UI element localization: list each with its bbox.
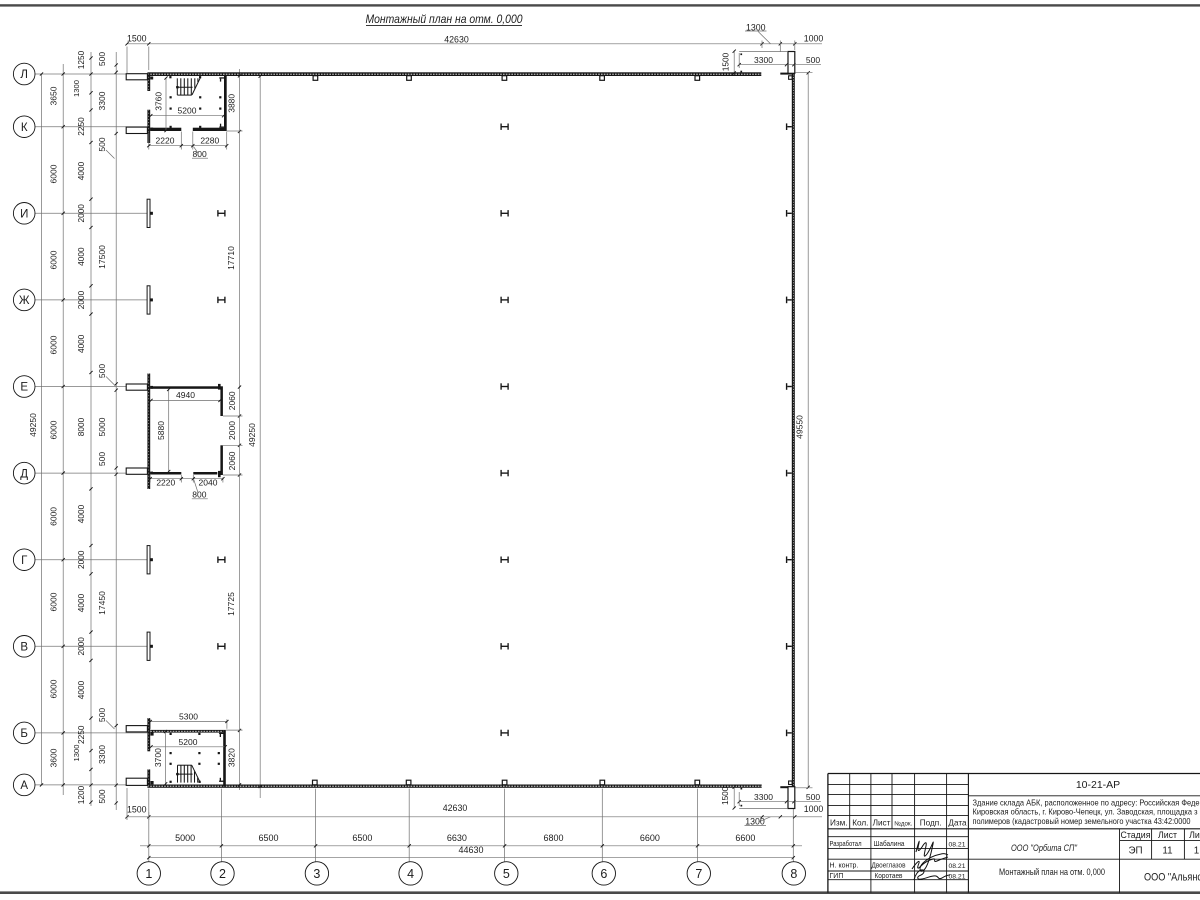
svg-text:6000: 6000 (49, 164, 59, 183)
svg-text:ООО "Альянс: ООО "Альянс (1144, 872, 1200, 884)
svg-text:Г: Г (21, 555, 28, 567)
svg-text:2: 2 (219, 867, 226, 881)
svg-text:Ли: Ли (1189, 830, 1200, 840)
svg-text:08.21: 08.21 (948, 841, 965, 848)
svg-text:3: 3 (313, 867, 320, 881)
svg-text:Д: Д (20, 468, 28, 480)
svg-text:1: 1 (145, 867, 152, 881)
svg-text:800: 800 (192, 490, 206, 500)
svg-text:2000: 2000 (76, 550, 86, 569)
svg-text:6000: 6000 (49, 420, 59, 439)
svg-text:5200: 5200 (178, 105, 197, 115)
svg-text:1000: 1000 (804, 804, 824, 814)
svg-text:Дата: Дата (948, 819, 967, 828)
svg-text:2000: 2000 (76, 637, 86, 656)
svg-text:3760: 3760 (154, 92, 164, 111)
svg-text:ЭП: ЭП (1128, 846, 1142, 857)
svg-text:3820: 3820 (226, 748, 236, 767)
svg-text:4000: 4000 (76, 593, 86, 612)
svg-text:2220: 2220 (156, 477, 175, 487)
svg-text:42630: 42630 (444, 35, 469, 45)
svg-text:2280: 2280 (200, 135, 219, 145)
svg-text:11: 11 (1162, 846, 1172, 857)
svg-text:6000: 6000 (49, 592, 59, 611)
svg-text:5: 5 (503, 867, 510, 881)
svg-text:3700: 3700 (153, 748, 163, 767)
svg-text:800: 800 (193, 149, 207, 159)
svg-text:№док.: №док. (894, 820, 912, 827)
svg-text:3300: 3300 (97, 745, 107, 764)
svg-text:полимеров (кадастровый номер з: полимеров (кадастровый номер земельного … (973, 816, 1191, 826)
svg-text:Е: Е (20, 382, 28, 394)
svg-text:3880: 3880 (227, 94, 237, 113)
svg-text:К: К (21, 122, 28, 134)
svg-text:Н. контр.: Н. контр. (830, 863, 859, 870)
svg-text:5200: 5200 (179, 737, 198, 747)
svg-text:6600: 6600 (640, 833, 660, 843)
svg-text:ООО "Орбита СП": ООО "Орбита СП" (1011, 843, 1078, 853)
svg-text:4000: 4000 (76, 247, 86, 266)
svg-text:44630: 44630 (458, 845, 483, 855)
svg-text:Разработал: Разработал (830, 840, 862, 848)
svg-text:500: 500 (806, 792, 820, 802)
svg-text:6000: 6000 (49, 335, 59, 354)
svg-text:3300: 3300 (97, 91, 107, 110)
svg-text:49250: 49250 (28, 413, 38, 437)
svg-text:2000: 2000 (76, 204, 86, 223)
svg-text:500: 500 (97, 708, 107, 722)
svg-text:6000: 6000 (49, 679, 59, 698)
svg-text:Б: Б (20, 728, 28, 740)
svg-text:7: 7 (695, 867, 702, 881)
svg-text:500: 500 (97, 364, 107, 378)
svg-text:Лист: Лист (873, 819, 891, 828)
svg-text:1: 1 (1194, 846, 1199, 857)
svg-text:2220: 2220 (156, 135, 175, 145)
svg-text:6600: 6600 (735, 833, 755, 843)
svg-text:5000: 5000 (97, 417, 107, 436)
svg-text:2000: 2000 (227, 421, 237, 440)
svg-text:2250: 2250 (76, 117, 86, 136)
svg-text:1500: 1500 (127, 33, 147, 43)
svg-text:4000: 4000 (76, 161, 86, 180)
svg-text:6630: 6630 (447, 833, 467, 843)
svg-text:3650: 3650 (49, 86, 59, 105)
svg-text:49250: 49250 (247, 423, 257, 447)
svg-text:17500: 17500 (97, 245, 107, 269)
svg-text:3300: 3300 (754, 55, 773, 65)
svg-text:В: В (20, 642, 28, 654)
svg-text:500: 500 (97, 789, 107, 803)
svg-text:Л: Л (20, 69, 28, 81)
svg-text:5300: 5300 (179, 712, 198, 722)
svg-text:Двоеглазов: Двоеглазов (872, 863, 906, 870)
svg-text:2000: 2000 (76, 290, 86, 309)
svg-text:500: 500 (97, 137, 107, 151)
svg-text:6: 6 (600, 867, 607, 881)
svg-text:ГИП: ГИП (830, 873, 844, 880)
svg-text:Монтажный план на отм. 0,000: Монтажный план на отм. 0,000 (366, 12, 523, 26)
svg-text:42630: 42630 (443, 803, 468, 813)
svg-text:1250: 1250 (76, 50, 86, 69)
svg-text:1500: 1500 (720, 52, 730, 71)
svg-text:Коротаев: Коротаев (875, 873, 903, 880)
svg-text:А: А (20, 780, 28, 792)
svg-text:1300: 1300 (72, 745, 81, 762)
svg-text:2250: 2250 (76, 725, 86, 744)
svg-text:5880: 5880 (156, 421, 166, 440)
svg-text:4000: 4000 (76, 334, 86, 353)
svg-text:1500: 1500 (127, 805, 147, 815)
svg-text:Кировская область, г. Кирово-Ч: Кировская область, г. Кирово-Чепецк, ул.… (973, 806, 1198, 816)
svg-text:4: 4 (407, 867, 414, 881)
svg-text:10-21-АР: 10-21-АР (1076, 779, 1120, 791)
svg-text:8000: 8000 (76, 417, 86, 436)
svg-text:Подп.: Подп. (920, 819, 942, 828)
svg-text:17450: 17450 (97, 591, 107, 615)
svg-text:2060: 2060 (227, 391, 237, 410)
svg-text:500: 500 (806, 55, 820, 65)
svg-text:6500: 6500 (352, 833, 372, 843)
svg-text:3600: 3600 (49, 748, 59, 767)
svg-text:1200: 1200 (76, 785, 86, 804)
svg-text:Лист: Лист (1158, 830, 1177, 840)
svg-text:500: 500 (97, 52, 107, 66)
svg-text:500: 500 (97, 452, 107, 466)
svg-text:08.21: 08.21 (948, 863, 965, 870)
svg-text:1300: 1300 (72, 80, 81, 97)
svg-text:6500: 6500 (258, 833, 278, 843)
svg-text:6800: 6800 (543, 833, 563, 843)
svg-text:1000: 1000 (804, 34, 824, 44)
svg-text:17725: 17725 (226, 592, 236, 616)
svg-text:3300: 3300 (754, 792, 773, 802)
svg-text:6000: 6000 (49, 507, 59, 526)
svg-text:2040: 2040 (199, 477, 218, 487)
svg-text:5000: 5000 (175, 833, 195, 843)
svg-text:Изм.: Изм. (830, 819, 848, 828)
svg-text:4000: 4000 (76, 680, 86, 699)
svg-text:49550: 49550 (795, 415, 805, 439)
svg-text:Шабалина: Шабалина (874, 840, 905, 848)
svg-text:17710: 17710 (226, 246, 236, 270)
svg-text:Ж: Ж (19, 295, 30, 307)
svg-text:4940: 4940 (176, 390, 195, 400)
svg-text:4000: 4000 (76, 504, 86, 523)
svg-text:Стадия: Стадия (1121, 830, 1151, 840)
svg-text:2060: 2060 (227, 451, 237, 470)
svg-text:Кол.: Кол. (852, 819, 868, 828)
svg-text:И: И (20, 209, 28, 221)
svg-text:08.21: 08.21 (948, 873, 965, 880)
svg-text:8: 8 (790, 867, 797, 881)
svg-text:1500: 1500 (720, 786, 730, 805)
svg-text:6000: 6000 (49, 250, 59, 269)
svg-text:Монтажный план на отм. 0,000: Монтажный план на отм. 0,000 (999, 867, 1105, 877)
